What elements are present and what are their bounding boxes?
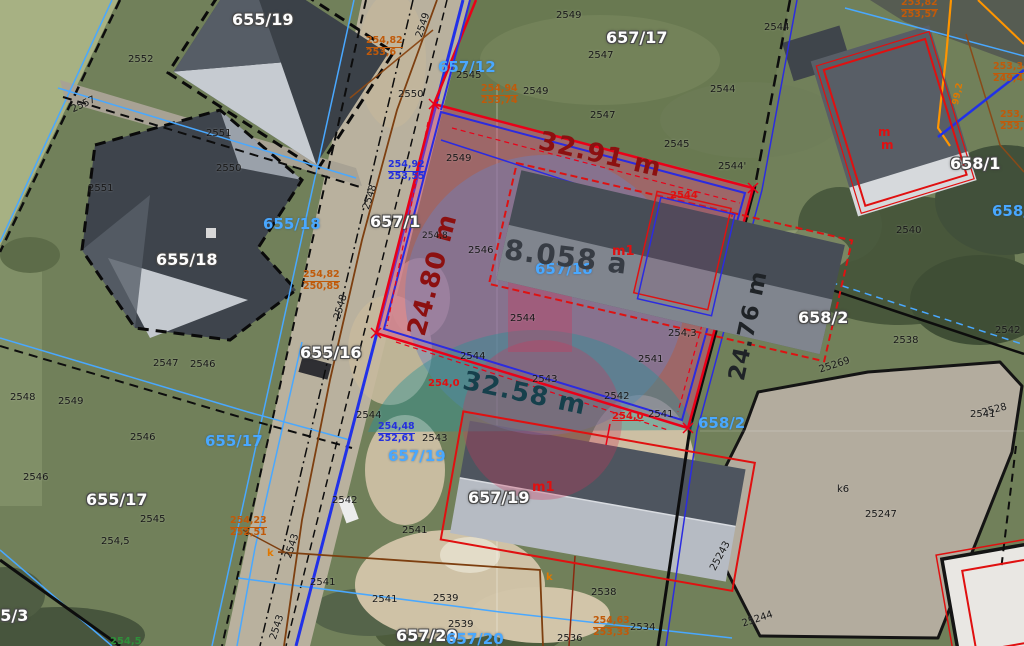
map-label-m: m xyxy=(878,126,891,138)
map-label-655-19: 655/19 xyxy=(232,12,294,28)
map-label-25269: 25269 xyxy=(818,356,851,375)
map-label-657-1: 657/1 xyxy=(370,214,420,230)
map-label-2538: 2538 xyxy=(893,336,918,346)
map-label-2539: 2539 xyxy=(448,620,473,630)
elevation-annotation: 254,23252,51 xyxy=(230,516,267,539)
map-label-2550: 2550 xyxy=(398,90,423,100)
map-label-2546: 2546 xyxy=(190,360,215,370)
elevation-annotation: 253,34249,45 xyxy=(993,62,1024,85)
map-label-655-17: 655/17 xyxy=(205,434,263,449)
map-label-2541: 2541 xyxy=(372,595,397,605)
elevation-annotation: 254,82253,6 xyxy=(366,36,403,59)
map-label-254-5: 254,5 xyxy=(101,537,130,547)
map-label-2544: 2544 xyxy=(460,352,485,362)
map-viewport[interactable]: 655/19657/17655/18657/1655/16655/17657/1… xyxy=(0,0,1024,646)
map-label-2547: 2547 xyxy=(153,359,178,369)
map-label-2544: 2544 xyxy=(670,191,698,201)
map-label-2547: 2547 xyxy=(588,51,613,61)
map-label-2552: 2552 xyxy=(128,55,153,65)
map-label-657-19: 657/19 xyxy=(388,449,446,464)
map-label-2549: 2549 xyxy=(446,154,471,164)
map-label-m1: m1 xyxy=(612,245,635,258)
elevation-annotation: 253,82253,57 xyxy=(901,0,938,21)
map-label-655-3: 655/3 xyxy=(0,608,28,624)
map-label-2545: 2545 xyxy=(664,140,689,150)
map-label-2543: 2543 xyxy=(532,375,557,385)
map-label-25243: 25243 xyxy=(709,540,733,573)
map-label-2548: 2548 xyxy=(10,393,35,403)
map-label-658-1: 658/1 xyxy=(950,156,1000,172)
map-label-2549: 2549 xyxy=(523,87,548,97)
map-label-254-3: 254,3 xyxy=(668,329,697,339)
map-label-2551: 2551 xyxy=(88,184,113,194)
map-label-657-17: 657/17 xyxy=(606,30,668,46)
map-label-2549: 2549 xyxy=(415,12,432,39)
map-label-655-18: 655/18 xyxy=(156,252,218,268)
map-label-k6: k6 xyxy=(837,485,849,495)
map-label-2546: 2546 xyxy=(23,473,48,483)
map-label-2543: 2543 xyxy=(284,533,301,560)
map-label-655-16: 655/16 xyxy=(300,345,362,361)
map-label-657-19: 657/19 xyxy=(468,490,530,506)
elevation-annotation: 254,94253,74 xyxy=(481,84,518,107)
map-label-32-58-m: 32.58 m xyxy=(461,368,589,420)
map-label-254-0: 254,0 xyxy=(428,379,460,389)
map-label-25244: 25244 xyxy=(741,610,774,629)
map-label-2549: 2549 xyxy=(58,397,83,407)
map-label-2542: 2542 xyxy=(604,392,629,402)
map-label-2540: 2540 xyxy=(896,226,921,236)
map-label-655-18: 655/18 xyxy=(263,217,321,232)
map-label-24-76-m: 24.76 m xyxy=(726,269,772,383)
map-label-658-2: 658/2 xyxy=(798,310,848,326)
map-label-2546: 2546 xyxy=(468,246,493,256)
map-label-2545: 2545 xyxy=(456,71,481,81)
map-label-2548: 2548 xyxy=(362,184,379,211)
map-label-2545: 2545 xyxy=(140,515,165,525)
elevation-annotation: 254,63253,33 xyxy=(593,616,630,639)
map-label-2543: 2543 xyxy=(422,434,447,444)
map-label-2541: 2541 xyxy=(402,526,427,536)
elevation-annotation: 253,8253,9 xyxy=(1000,110,1024,133)
elevation-annotation: 254,82250,85 xyxy=(303,270,340,293)
elevation-annotation: 254,92253,55 xyxy=(388,160,425,183)
elevation-annotation: 254,48252,61 xyxy=(378,422,415,445)
map-label-k: k xyxy=(267,549,274,559)
map-label-2543: 2543 xyxy=(269,614,286,641)
map-label-2544-: 2544' xyxy=(718,162,746,172)
map-label-2550: 2550 xyxy=(216,164,241,174)
map-label-k: k xyxy=(546,573,553,583)
map-label-2541: 2541 xyxy=(310,578,335,588)
map-label-99-2: 99,2 xyxy=(952,82,965,106)
map-label-254-8: 254,8 xyxy=(422,232,448,241)
map-label-254-5: 254,5 xyxy=(110,637,142,646)
map-label-2542: 2542 xyxy=(995,326,1020,336)
map-label-2536: 2536 xyxy=(557,634,582,644)
map-label-2548: 2548 xyxy=(333,294,350,321)
map-label-2538: 2538 xyxy=(591,588,616,598)
map-label-2541: 2541 xyxy=(648,410,673,420)
map-label-2547: 2547 xyxy=(590,111,615,121)
map-label-2546: 2546 xyxy=(130,433,155,443)
map-label-2544: 2544 xyxy=(510,314,535,324)
map-label-254-0: 254,0 xyxy=(612,412,644,422)
map-label-657-20: 657/20 xyxy=(446,632,504,646)
map-label-2544: 2544 xyxy=(764,23,789,33)
map-label-2534: 2534 xyxy=(630,623,655,633)
map-label-2557: 2557 xyxy=(70,95,97,115)
map-label-m: m xyxy=(881,139,894,151)
map-label-32-91-m: 32.91 m xyxy=(536,128,664,182)
map-label-2544: 2544 xyxy=(356,411,381,421)
map-label-8-058-a: 8.058 a xyxy=(503,236,630,279)
labels-layer: 655/19657/17655/18657/1655/16655/17657/1… xyxy=(0,0,1024,646)
map-label-658-2: 658/2 xyxy=(698,416,745,431)
map-label-658-1: 658/1 xyxy=(992,204,1024,219)
map-label-m1: m1 xyxy=(532,481,555,494)
map-label-655-17: 655/17 xyxy=(86,492,148,508)
map-label-25247: 25247 xyxy=(865,510,897,520)
map-label-2539: 2539 xyxy=(433,594,458,604)
map-label-2541: 2541 xyxy=(638,355,663,365)
map-label-2551: 2551 xyxy=(206,129,231,139)
map-label-2549: 2549 xyxy=(556,11,581,21)
map-label-2544: 2544 xyxy=(710,85,735,95)
map-label-2542: 2542 xyxy=(332,496,357,506)
